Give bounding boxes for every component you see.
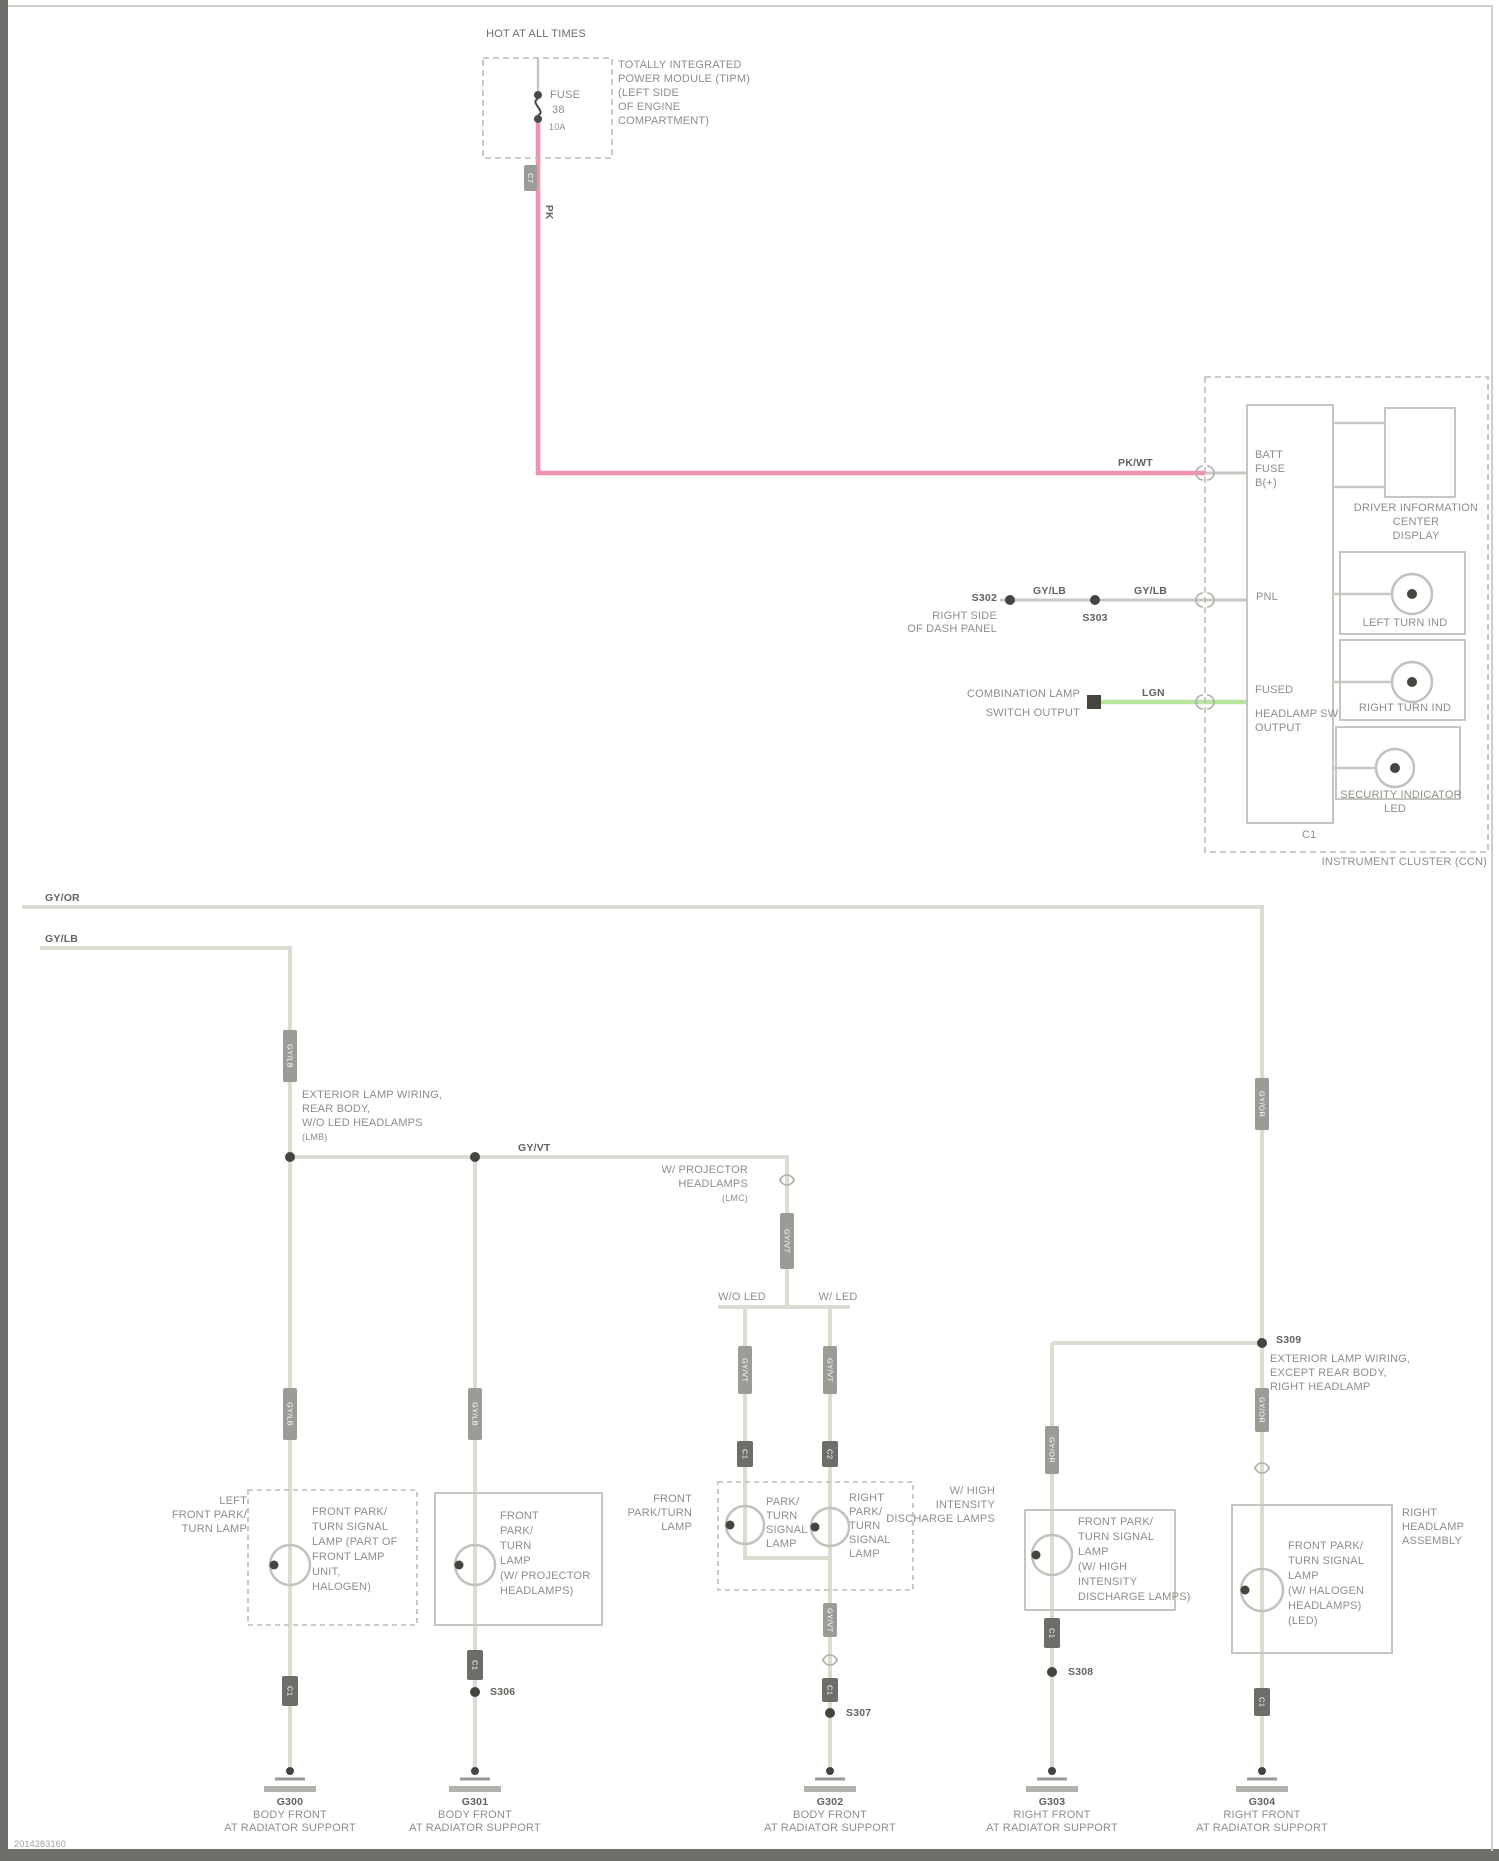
wire-tag: GY/VT (780, 1213, 794, 1269)
indicator-label: LED (1345, 802, 1445, 817)
connector-tag: C1 (822, 1678, 838, 1702)
wire-code-label: GY/LB (1134, 584, 1167, 599)
splice-label: S309 (1276, 1333, 1301, 1348)
harness-note: (LMC) (722, 1192, 748, 1204)
wire-tag: GY/VT (738, 1346, 752, 1394)
lamp-detail-label: RIGHT (849, 1491, 884, 1506)
fuse-terminal-dot (534, 115, 542, 123)
harness-note: EXTERIOR LAMP WIRING, (1270, 1352, 1410, 1367)
ground-label: AT RADIATOR SUPPORT (1152, 1821, 1372, 1836)
ground-label: AT RADIATOR SUPPORT (365, 1821, 585, 1836)
lamp-detail-label: (W/ PROJECTOR (500, 1569, 590, 1584)
lamp-detail-label: INTENSITY (1078, 1575, 1137, 1590)
fuse-label: FUSE (550, 88, 580, 103)
lamp-detail-label: DISCHARGE LAMPS) (1078, 1590, 1191, 1605)
display-label: DISPLAY (1341, 529, 1491, 544)
harness-note: EXTERIOR LAMP WIRING, (302, 1088, 442, 1103)
lamp-detail-label: LAMP (PART OF (312, 1535, 398, 1550)
lamp-detail-label: LAMP (500, 1554, 531, 1569)
fuse-element-icon (535, 99, 540, 115)
pin-label: OUTPUT (1255, 721, 1301, 736)
harness-note: W/O LED HEADLAMPS (302, 1116, 423, 1131)
tipm-label: (LEFT SIDE (618, 86, 679, 101)
harness-note: REAR BODY, (302, 1102, 370, 1117)
splice-label: S306 (490, 1685, 515, 1700)
indicator-label: SECURITY INDICATOR (1316, 788, 1486, 803)
lamp-detail-label: FRONT PARK/ (1288, 1539, 1363, 1554)
lamp-name-label: LAMP (661, 1520, 692, 1535)
lamp-name-label: FRONT PARK/ (172, 1508, 247, 1523)
fuse-rating-label: 10A (549, 121, 566, 133)
lamp-detail-label: TURN SIGNAL (312, 1520, 388, 1535)
lamp-detail-label: LAMP (849, 1547, 880, 1562)
lamp-name-label: HEADLAMP (1402, 1520, 1464, 1535)
lamp-detail-label: SIGNAL (849, 1533, 891, 1548)
condition-label: INTENSITY (936, 1498, 995, 1513)
wiring-diagram-page: C7 GY/LB GY/OR GY/VT GY/VT GY/VT C1 C2 G… (0, 0, 1499, 1861)
connector-tag: C1 (467, 1650, 483, 1680)
lamp-detail-label: FRONT (500, 1509, 539, 1524)
lamp-detail-label: FRONT PARK/ (1078, 1515, 1153, 1530)
wire-tag: GY/OR (1045, 1426, 1059, 1474)
wire-note: SWITCH OUTPUT (986, 706, 1080, 721)
wire-code-label: GY/LB (45, 932, 78, 947)
lamp-detail-label: TURN (766, 1509, 797, 1524)
pin-label: PNL (1256, 590, 1278, 605)
wire-tag: GY/OR (1255, 1078, 1269, 1130)
wire-code-label: PK (543, 205, 554, 220)
instrument-cluster-box (1205, 377, 1488, 852)
harness-note: RIGHT HEADLAMP (1270, 1380, 1370, 1395)
inline-connector-icons (780, 466, 1269, 1665)
fuse-block-box (483, 58, 612, 158)
condition-label: W/ HIGH (950, 1484, 995, 1499)
hot-at-all-times-label: HOT AT ALL TIMES (460, 27, 612, 42)
tipm-label: COMPARTMENT) (618, 114, 709, 129)
lamp-detail-label: HEADLAMPS) (500, 1584, 574, 1599)
ground-label: AT RADIATOR SUPPORT (942, 1821, 1162, 1836)
wire-code-label: LGN (1142, 686, 1165, 701)
wire-code-label: PK/WT (1118, 456, 1153, 471)
pin-label: B(+) (1255, 476, 1277, 491)
indicator-label: LEFT TURN IND (1345, 616, 1465, 631)
lamp-detail-label: TURN (500, 1539, 531, 1554)
condition-label: DISCHARGE LAMPS (886, 1512, 995, 1527)
wire-tag: GY/LB (468, 1388, 482, 1440)
harness-note: W/ PROJECTOR (661, 1163, 748, 1178)
connector-tag: C1 (1044, 1618, 1060, 1648)
wire-code-label: GY/LB (1033, 584, 1066, 599)
wire-tag: GY/VT (823, 1346, 837, 1394)
splice-label: S302 (972, 591, 997, 606)
lamp-assembly-boxes (248, 1482, 1392, 1653)
lamp-detail-label: PARK/ (766, 1495, 799, 1510)
display-label: DRIVER INFORMATION (1341, 501, 1491, 516)
connector-tag: C1 (737, 1441, 753, 1467)
connector-label: C1 (1302, 828, 1316, 843)
diagram-id-label: 2014283160 (14, 1838, 66, 1850)
pin-label: FUSE (1255, 462, 1285, 477)
lamp-detail-label: UNIT, (312, 1565, 341, 1580)
splice-label: S307 (846, 1706, 871, 1721)
harness-note: EXCEPT REAR BODY, (1270, 1366, 1387, 1381)
lamp-detail-label: (LED) (1288, 1614, 1318, 1629)
wire-note: OF DASH PANEL (907, 622, 997, 637)
lamp-detail-label: LAMP (1288, 1569, 1319, 1584)
tipm-label: TOTALLY INTEGRATED (618, 58, 742, 73)
wiring-svg (0, 0, 1499, 1861)
indicator-label: RIGHT TURN IND (1345, 701, 1465, 716)
lamp-detail-label: HEADLAMPS) (1288, 1599, 1362, 1614)
lamp-detail-label: TURN (849, 1519, 880, 1534)
wire-tag: GY/VT (823, 1603, 837, 1637)
ground-symbols (264, 1767, 1288, 1792)
ground-label: AT RADIATOR SUPPORT (720, 1821, 940, 1836)
splice-label: S303 (1065, 611, 1125, 626)
lamp-name-label: RIGHT (1402, 1506, 1437, 1521)
wire-tag: GY/LB (283, 1388, 297, 1440)
lamp-detail-label: FRONT LAMP (312, 1550, 385, 1565)
lamp-detail-label: FRONT PARK/ (312, 1505, 387, 1520)
connector-tag: C1 (1254, 1688, 1270, 1716)
lamp-detail-label: LAMP (766, 1537, 797, 1552)
pin-label: HEADLAMP SW (1255, 707, 1338, 722)
pin-label: BATT (1255, 448, 1283, 463)
connector-tag: C7 (524, 165, 537, 191)
fuse-terminal-dot (534, 91, 542, 99)
lamp-detail-label: (W/ HIGH (1078, 1560, 1127, 1575)
lamp-name-label: PARK/TURN (627, 1506, 692, 1521)
lamp-detail-label: (W/ HALOGEN (1288, 1584, 1364, 1599)
lamp-detail-label: TURN SIGNAL (1288, 1554, 1364, 1569)
wire-code-label: GY/VT (518, 1141, 551, 1156)
lamp-detail-label: PARK/ (849, 1505, 882, 1520)
lamp-detail-label: PARK/ (500, 1524, 533, 1539)
connector-tag: C2 (822, 1441, 838, 1467)
display-box (1385, 408, 1455, 497)
lamp-detail-label: LAMP (1078, 1545, 1109, 1560)
splice-label: S308 (1068, 1665, 1093, 1680)
module-name-label: INSTRUMENT CLUSTER (CCN) (1322, 855, 1487, 870)
lamp-name-label: TURN LAMP (182, 1522, 247, 1537)
lamp-detail-label: HALOGEN) (312, 1580, 371, 1595)
lamp-name-label: LEFT (219, 1494, 247, 1509)
lamp-detail-label: TURN SIGNAL (1078, 1530, 1154, 1545)
connector-tag: C1 (282, 1676, 298, 1706)
branch-condition-label: W/O LED (702, 1290, 782, 1305)
branch-condition-label: W/ LED (798, 1290, 878, 1305)
lamp-detail-label: SIGNAL (766, 1523, 808, 1538)
tipm-label: OF ENGINE (618, 100, 680, 115)
pin-label: FUSED (1255, 683, 1293, 698)
switch-terminal-icon (1087, 695, 1101, 709)
ground-distribution-wires (22, 907, 1262, 1772)
lamp-name-label: ASSEMBLY (1402, 1534, 1462, 1549)
lamp-name-label: FRONT (653, 1492, 692, 1507)
tipm-label: POWER MODULE (TIPM) (618, 72, 750, 87)
display-label: CENTER (1341, 515, 1491, 530)
wire-code-label: GY/OR (45, 891, 80, 906)
harness-note: HEADLAMPS (678, 1177, 748, 1192)
harness-note: (LMB) (302, 1131, 328, 1143)
wire-tag: GY/LB (283, 1030, 297, 1082)
wire-tag: GY/OR (1255, 1388, 1269, 1432)
fuse-label: 38 (552, 103, 565, 118)
wire-note: COMBINATION LAMP (967, 687, 1080, 702)
